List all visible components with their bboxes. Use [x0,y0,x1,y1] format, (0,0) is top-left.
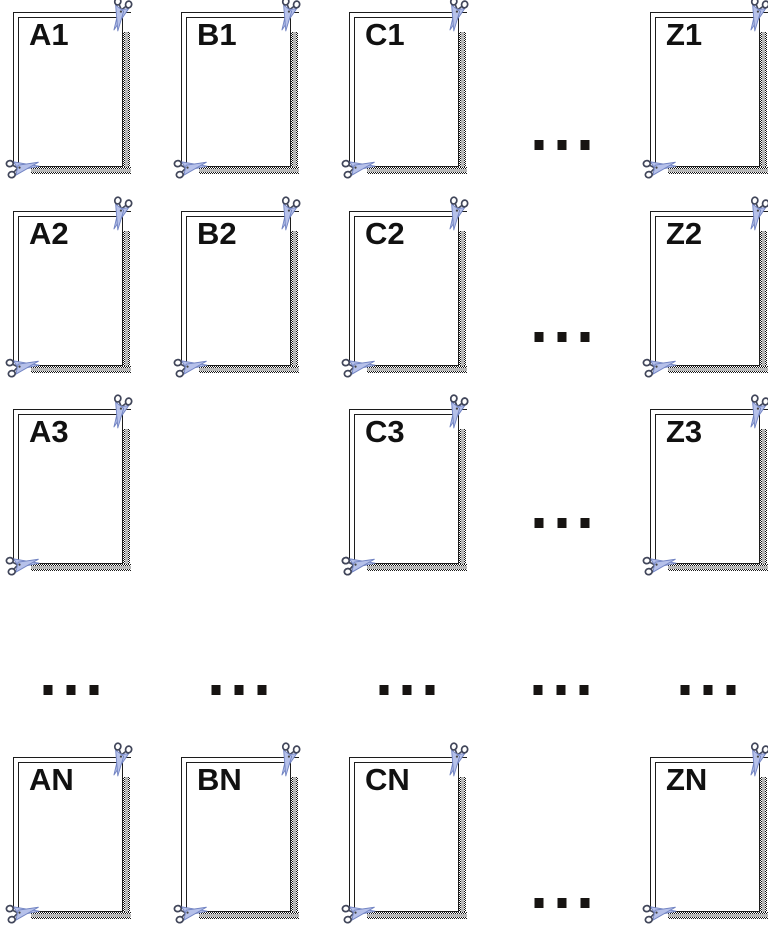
ellipsis-dot [535,140,544,150]
card-face: A2 [18,216,123,366]
ellipsis-dot [581,140,590,150]
cut-line-left [349,757,350,909]
card-face: B2 [186,216,291,366]
scissors-icon [106,195,134,233]
scissors-icon [642,154,679,180]
coupon-card: BN [181,757,299,919]
coupon-card: B1 [181,12,299,174]
coupon-card: Z2 [650,211,768,373]
scissors-icon [173,353,210,379]
coupon-card: A3 [13,409,131,571]
scissors-icon [274,195,302,233]
scissors-icon [341,154,378,180]
coupon-card: ZN [650,757,768,919]
card-face: Z2 [655,216,760,366]
ellipsis [681,685,736,695]
cut-line-left [13,12,14,164]
cut-line-left [13,757,14,909]
card-face: AN [18,762,123,912]
ellipsis [212,685,267,695]
cut-line-left [349,409,350,561]
shadow-band-right [760,32,767,174]
scissors-icon [442,741,470,779]
shadow-band-bottom [367,912,467,919]
scissors-icon [5,899,42,925]
ellipsis-dot [557,685,566,695]
shadow-band-bottom [199,912,299,919]
ellipsis-dot [580,685,589,695]
shadow-band-bottom [367,366,467,373]
shadow-band-right [291,32,298,174]
ellipsis-dot [67,685,76,695]
scissors-icon [341,899,378,925]
card-face: Z1 [655,17,760,167]
ellipsis-dot [403,685,412,695]
cut-line-left [650,12,651,164]
scissors-icon [5,154,42,180]
shadow-band-right [123,231,130,373]
coupon-card: AN [13,757,131,919]
shadow-band-right [760,429,767,571]
scissors-icon [743,393,768,431]
ellipsis-dot [90,685,99,695]
card-face: BN [186,762,291,912]
scissors-icon [106,0,134,34]
cut-line-left [181,757,182,909]
shadow-band-right [760,777,767,919]
shadow-band-bottom [199,366,299,373]
ellipsis-dot [558,332,567,342]
shadow-band-right [459,32,466,174]
coupon-card: A1 [13,12,131,174]
ellipsis-dot [535,898,544,908]
card-face: C1 [354,17,459,167]
ellipsis-dot [581,518,590,528]
card-face: Z3 [655,414,760,564]
scissors-icon [642,353,679,379]
ellipsis-dot [558,140,567,150]
scissors-icon [341,551,378,577]
shadow-band-bottom [367,564,467,571]
ellipsis-dot [535,518,544,528]
ellipsis-dot [704,685,713,695]
shadow-band-bottom [199,167,299,174]
scissors-icon [442,195,470,233]
scissors-icon [743,741,768,779]
ellipsis [535,140,590,150]
coupon-card: C1 [349,12,467,174]
shadow-band-right [291,777,298,919]
coupon-grid-figure: A1 [0,0,768,927]
ellipsis [534,685,589,695]
coupon-card: B2 [181,211,299,373]
ellipsis-dot [681,685,690,695]
shadow-band-bottom [31,912,131,919]
shadow-band-bottom [367,167,467,174]
shadow-band-bottom [31,167,131,174]
shadow-band-right [459,777,466,919]
scissors-icon [442,0,470,34]
coupon-card: C2 [349,211,467,373]
shadow-band-bottom [31,366,131,373]
ellipsis-dot [380,685,389,695]
ellipsis [380,685,435,695]
scissors-icon [106,393,134,431]
shadow-band-bottom [668,366,768,373]
shadow-band-right [760,231,767,373]
ellipsis [535,898,590,908]
ellipsis [535,332,590,342]
coupon-card: A2 [13,211,131,373]
shadow-band-right [123,32,130,174]
coupon-card: CN [349,757,467,919]
shadow-band-bottom [668,167,768,174]
card-face: C3 [354,414,459,564]
scissors-icon [274,0,302,34]
card-face: B1 [186,17,291,167]
scissors-icon [743,0,768,34]
scissors-icon [173,899,210,925]
card-face: CN [354,762,459,912]
card-face: A1 [18,17,123,167]
card-face: ZN [655,762,760,912]
ellipsis [44,685,99,695]
ellipsis-dot [212,685,221,695]
scissors-icon [341,353,378,379]
shadow-band-bottom [668,564,768,571]
shadow-band-right [291,231,298,373]
cut-line-left [650,211,651,363]
cut-line-left [13,211,14,363]
ellipsis-dot [558,518,567,528]
scissors-icon [642,551,679,577]
ellipsis-dot [581,898,590,908]
cut-line-left [349,12,350,164]
shadow-band-bottom [31,564,131,571]
cut-line-left [181,12,182,164]
shadow-band-right [123,429,130,571]
ellipsis-dot [44,685,53,695]
ellipsis [535,518,590,528]
card-face: C2 [354,216,459,366]
scissors-icon [5,353,42,379]
scissors-icon [743,195,768,233]
cut-line-left [181,211,182,363]
coupon-card: C3 [349,409,467,571]
cut-line-left [650,409,651,561]
ellipsis-dot [558,898,567,908]
scissors-icon [642,899,679,925]
scissors-icon [5,551,42,577]
cut-line-left [650,757,651,909]
card-face: A3 [18,414,123,564]
ellipsis-dot [426,685,435,695]
ellipsis-dot [235,685,244,695]
ellipsis-dot [535,332,544,342]
cut-line-left [13,409,14,561]
ellipsis-dot [534,685,543,695]
ellipsis-dot [581,332,590,342]
shadow-band-bottom [668,912,768,919]
shadow-band-right [459,231,466,373]
shadow-band-right [459,429,466,571]
ellipsis-dot [727,685,736,695]
shadow-band-right [123,777,130,919]
scissors-icon [274,741,302,779]
ellipsis-dot [258,685,267,695]
cut-line-left [349,211,350,363]
coupon-card: Z1 [650,12,768,174]
scissors-icon [106,741,134,779]
coupon-card: Z3 [650,409,768,571]
scissors-icon [173,154,210,180]
scissors-icon [442,393,470,431]
